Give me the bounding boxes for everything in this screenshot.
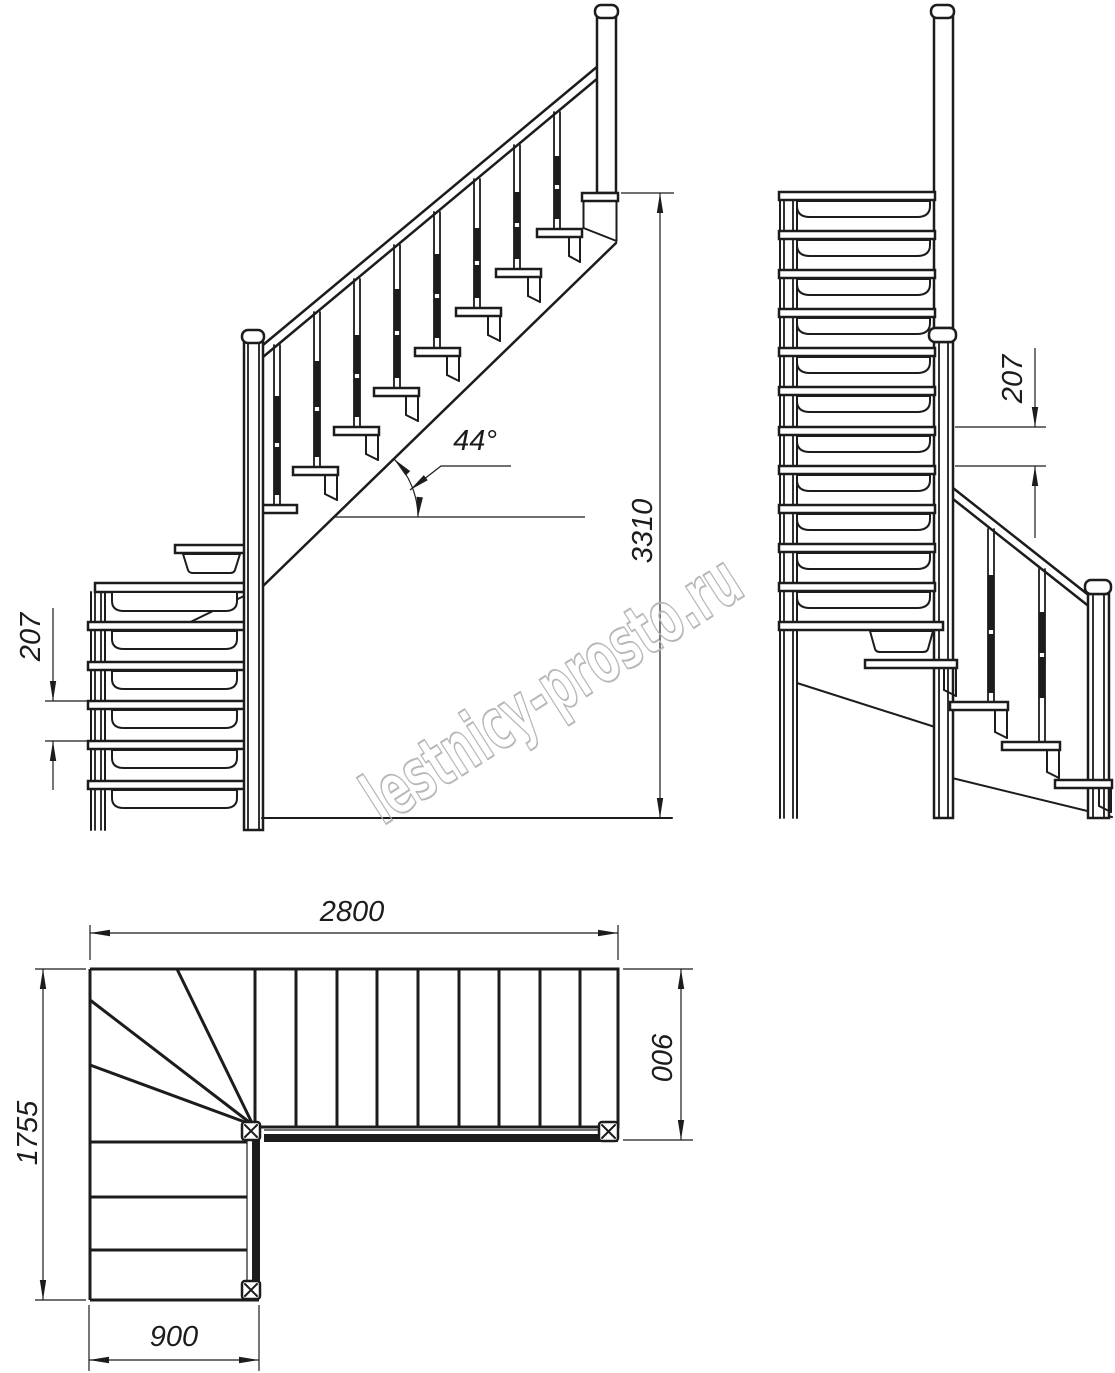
tread-stack-side — [779, 192, 935, 608]
newel-post-marker — [242, 1122, 260, 1140]
plan-length-label: 2800 — [319, 896, 385, 928]
plan-total-depth-label: 1755 — [12, 1100, 44, 1165]
drawing-canvas: 207 3310 44° — [0, 0, 1115, 1373]
riser-height-label-front: 207 — [15, 611, 47, 662]
riser-height-label-side: 207 — [997, 353, 1029, 404]
central-newel-post-side — [929, 5, 956, 818]
corner-newel-post-front — [242, 330, 264, 830]
newel-post-marker — [599, 1122, 618, 1141]
total-height-label: 3310 — [627, 499, 659, 564]
angle-label: 44° — [453, 425, 497, 457]
staircase-blueprint: 207 3310 44° — [0, 0, 1115, 1373]
newel-post-marker — [242, 1281, 260, 1299]
plan-flight-width-label: 900 — [645, 1033, 677, 1081]
plan-lower-width-label: 900 — [150, 1321, 198, 1353]
top-newel-post-front — [595, 5, 618, 193]
